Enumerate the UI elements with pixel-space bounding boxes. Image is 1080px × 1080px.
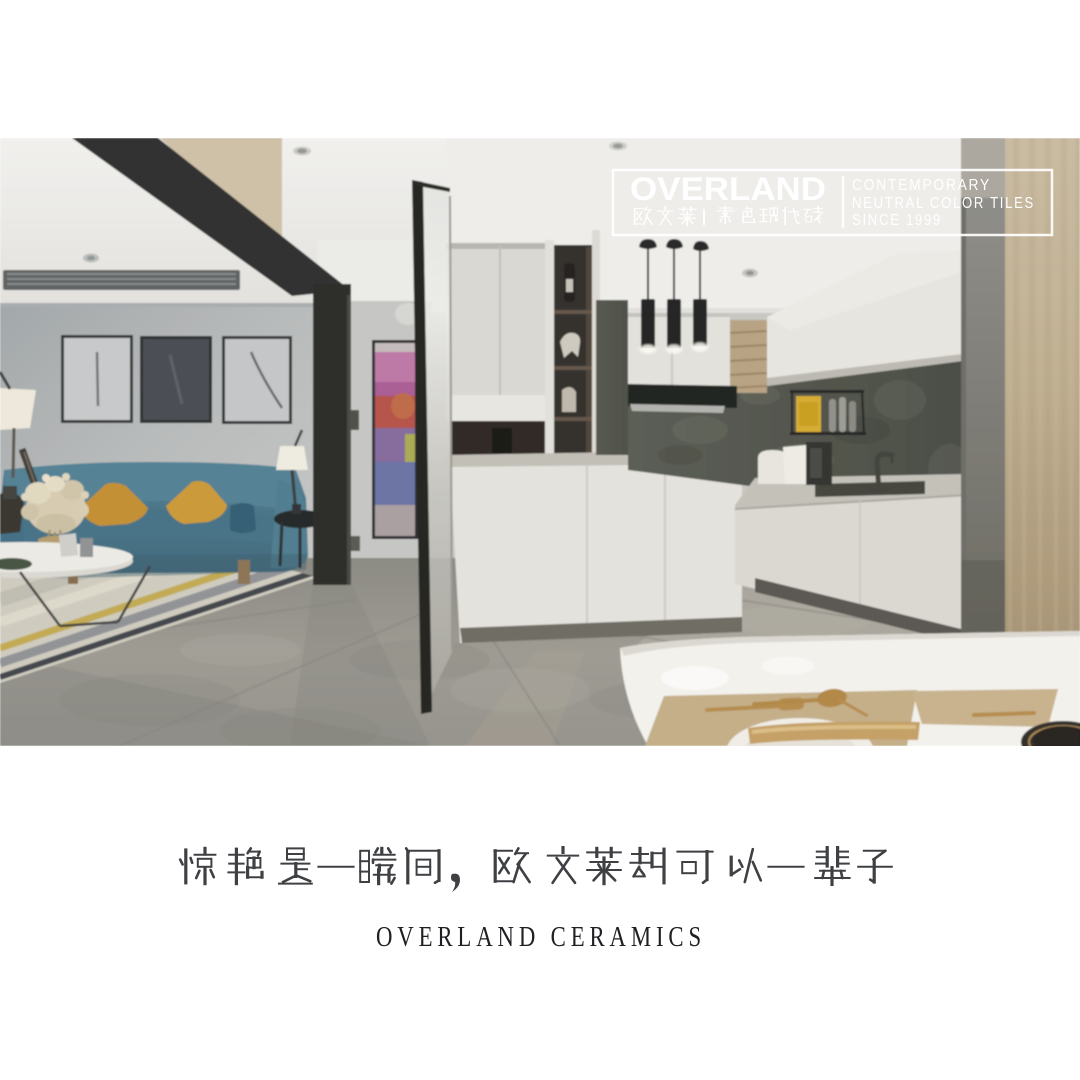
svg-text:OVERLAND CERAMICS: OVERLAND CERAMICS [376, 922, 706, 953]
svg-text:CONTEMPORARY: CONTEMPORARY [852, 177, 991, 194]
svg-text:SINCE 1999: SINCE 1999 [852, 212, 942, 229]
svg-text:OVERLAND: OVERLAND [630, 171, 826, 207]
svg-text:NEUTRAL COLOR TILES: NEUTRAL COLOR TILES [852, 195, 1035, 212]
